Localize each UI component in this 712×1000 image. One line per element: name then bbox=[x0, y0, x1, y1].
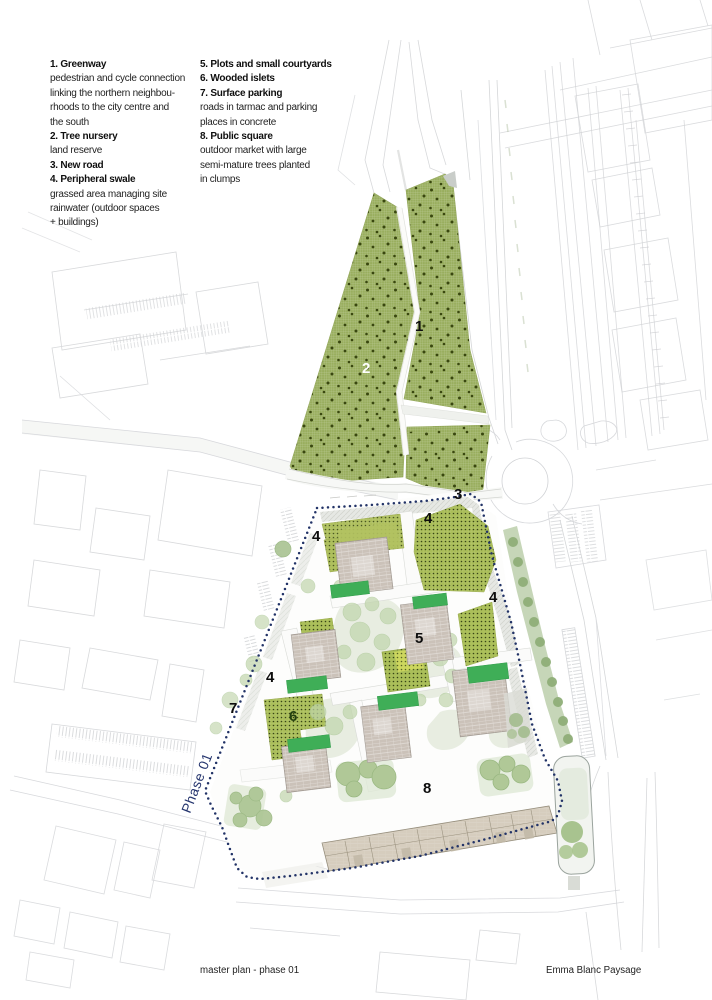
svg-text:8: 8 bbox=[423, 780, 431, 797]
svg-text:5: 5 bbox=[415, 630, 423, 647]
svg-text:4: 4 bbox=[312, 528, 321, 545]
svg-text:1: 1 bbox=[415, 318, 423, 335]
svg-text:4: 4 bbox=[424, 510, 433, 527]
svg-text:7: 7 bbox=[229, 700, 237, 717]
svg-text:4: 4 bbox=[489, 589, 498, 606]
svg-text:6: 6 bbox=[289, 708, 297, 725]
svg-text:4: 4 bbox=[266, 669, 275, 686]
svg-text:2: 2 bbox=[362, 360, 370, 377]
svg-text:3: 3 bbox=[454, 486, 462, 503]
